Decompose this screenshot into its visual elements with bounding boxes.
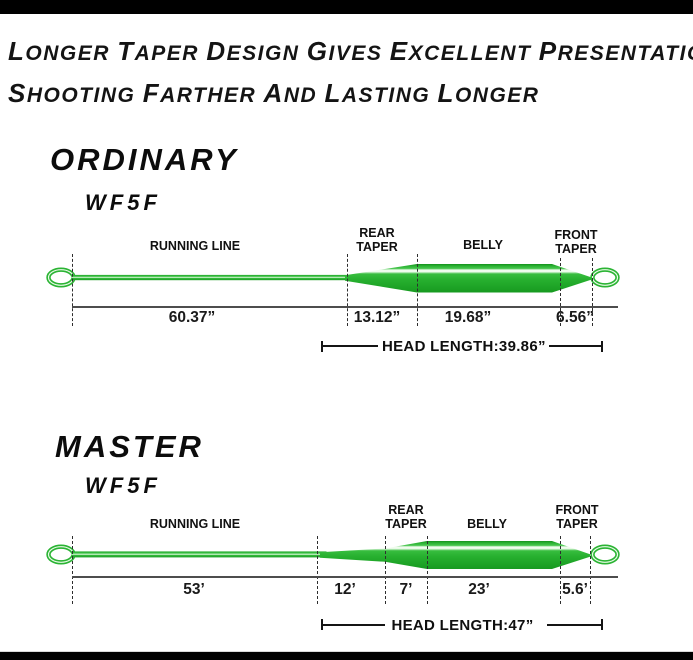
master-belly-shape: [320, 541, 590, 569]
master-running-line-shape: [72, 551, 327, 557]
measurement-baseline: [72, 576, 618, 578]
measurement-front-taper: 5.6’: [545, 581, 605, 599]
head-length-segment: [323, 624, 385, 626]
ordinary-left-loop-highlight: [49, 270, 74, 286]
measurement-belly: 23’: [429, 581, 529, 599]
label-belly: BELLY: [449, 518, 525, 532]
section-title-master: MASTER: [55, 429, 204, 465]
measurement-rear-taper: 13.12”: [342, 309, 412, 327]
measurement-belly: 19.68”: [418, 309, 518, 327]
measurement-rear-taper: 7’: [383, 581, 429, 599]
boundary-dash: [72, 254, 73, 326]
ordinary-belly-shape: [345, 264, 591, 293]
label-rear-taper: REAR TAPER: [380, 504, 432, 531]
measurement-running-line: 53’: [154, 581, 234, 599]
model-label-master: WF5F: [85, 473, 161, 499]
head-length-segment: [547, 624, 602, 626]
bottom-black-bar: [0, 651, 693, 660]
label-running-line: RUNNING LINE: [120, 518, 270, 532]
label-running-line: RUNNING LINE: [120, 240, 270, 254]
ordinary-running-line-shape: [72, 275, 352, 280]
head-length-value: HEAD LENGTH:47”: [390, 617, 535, 634]
head-length-segment: [549, 345, 602, 347]
master-right-loop-highlight: [593, 547, 618, 563]
measurement-front-taper: 6.56”: [545, 309, 605, 327]
model-label-ordinary: WF5F: [85, 190, 161, 216]
ordinary-line-profile: [49, 264, 618, 293]
section-title-ordinary: ORDINARY: [50, 142, 239, 178]
label-front-taper: FRONT TAPER: [549, 229, 603, 256]
label-belly: BELLY: [445, 239, 521, 253]
measurement-handling-section: 12’: [315, 581, 375, 599]
master-left-loop-highlight: [49, 547, 74, 563]
label-front-taper: FRONT TAPER: [550, 504, 604, 531]
boundary-dash: [72, 536, 73, 604]
head-length-tick: [601, 341, 603, 352]
measurement-baseline: [72, 306, 618, 308]
head-length-value: HEAD LENGTH:39.86”: [382, 338, 545, 355]
master-line-profile: [49, 541, 618, 569]
ordinary-right-loop-highlight: [593, 270, 618, 286]
head-length-tick: [601, 619, 603, 630]
measurement-running-line: 60.37”: [142, 309, 242, 327]
head-length-segment: [323, 345, 378, 347]
fly-line-infographic: LONGER TAPER DESIGN GIVES EXCELLENT PRES…: [0, 0, 693, 660]
label-rear-taper: REAR TAPER: [351, 227, 403, 254]
